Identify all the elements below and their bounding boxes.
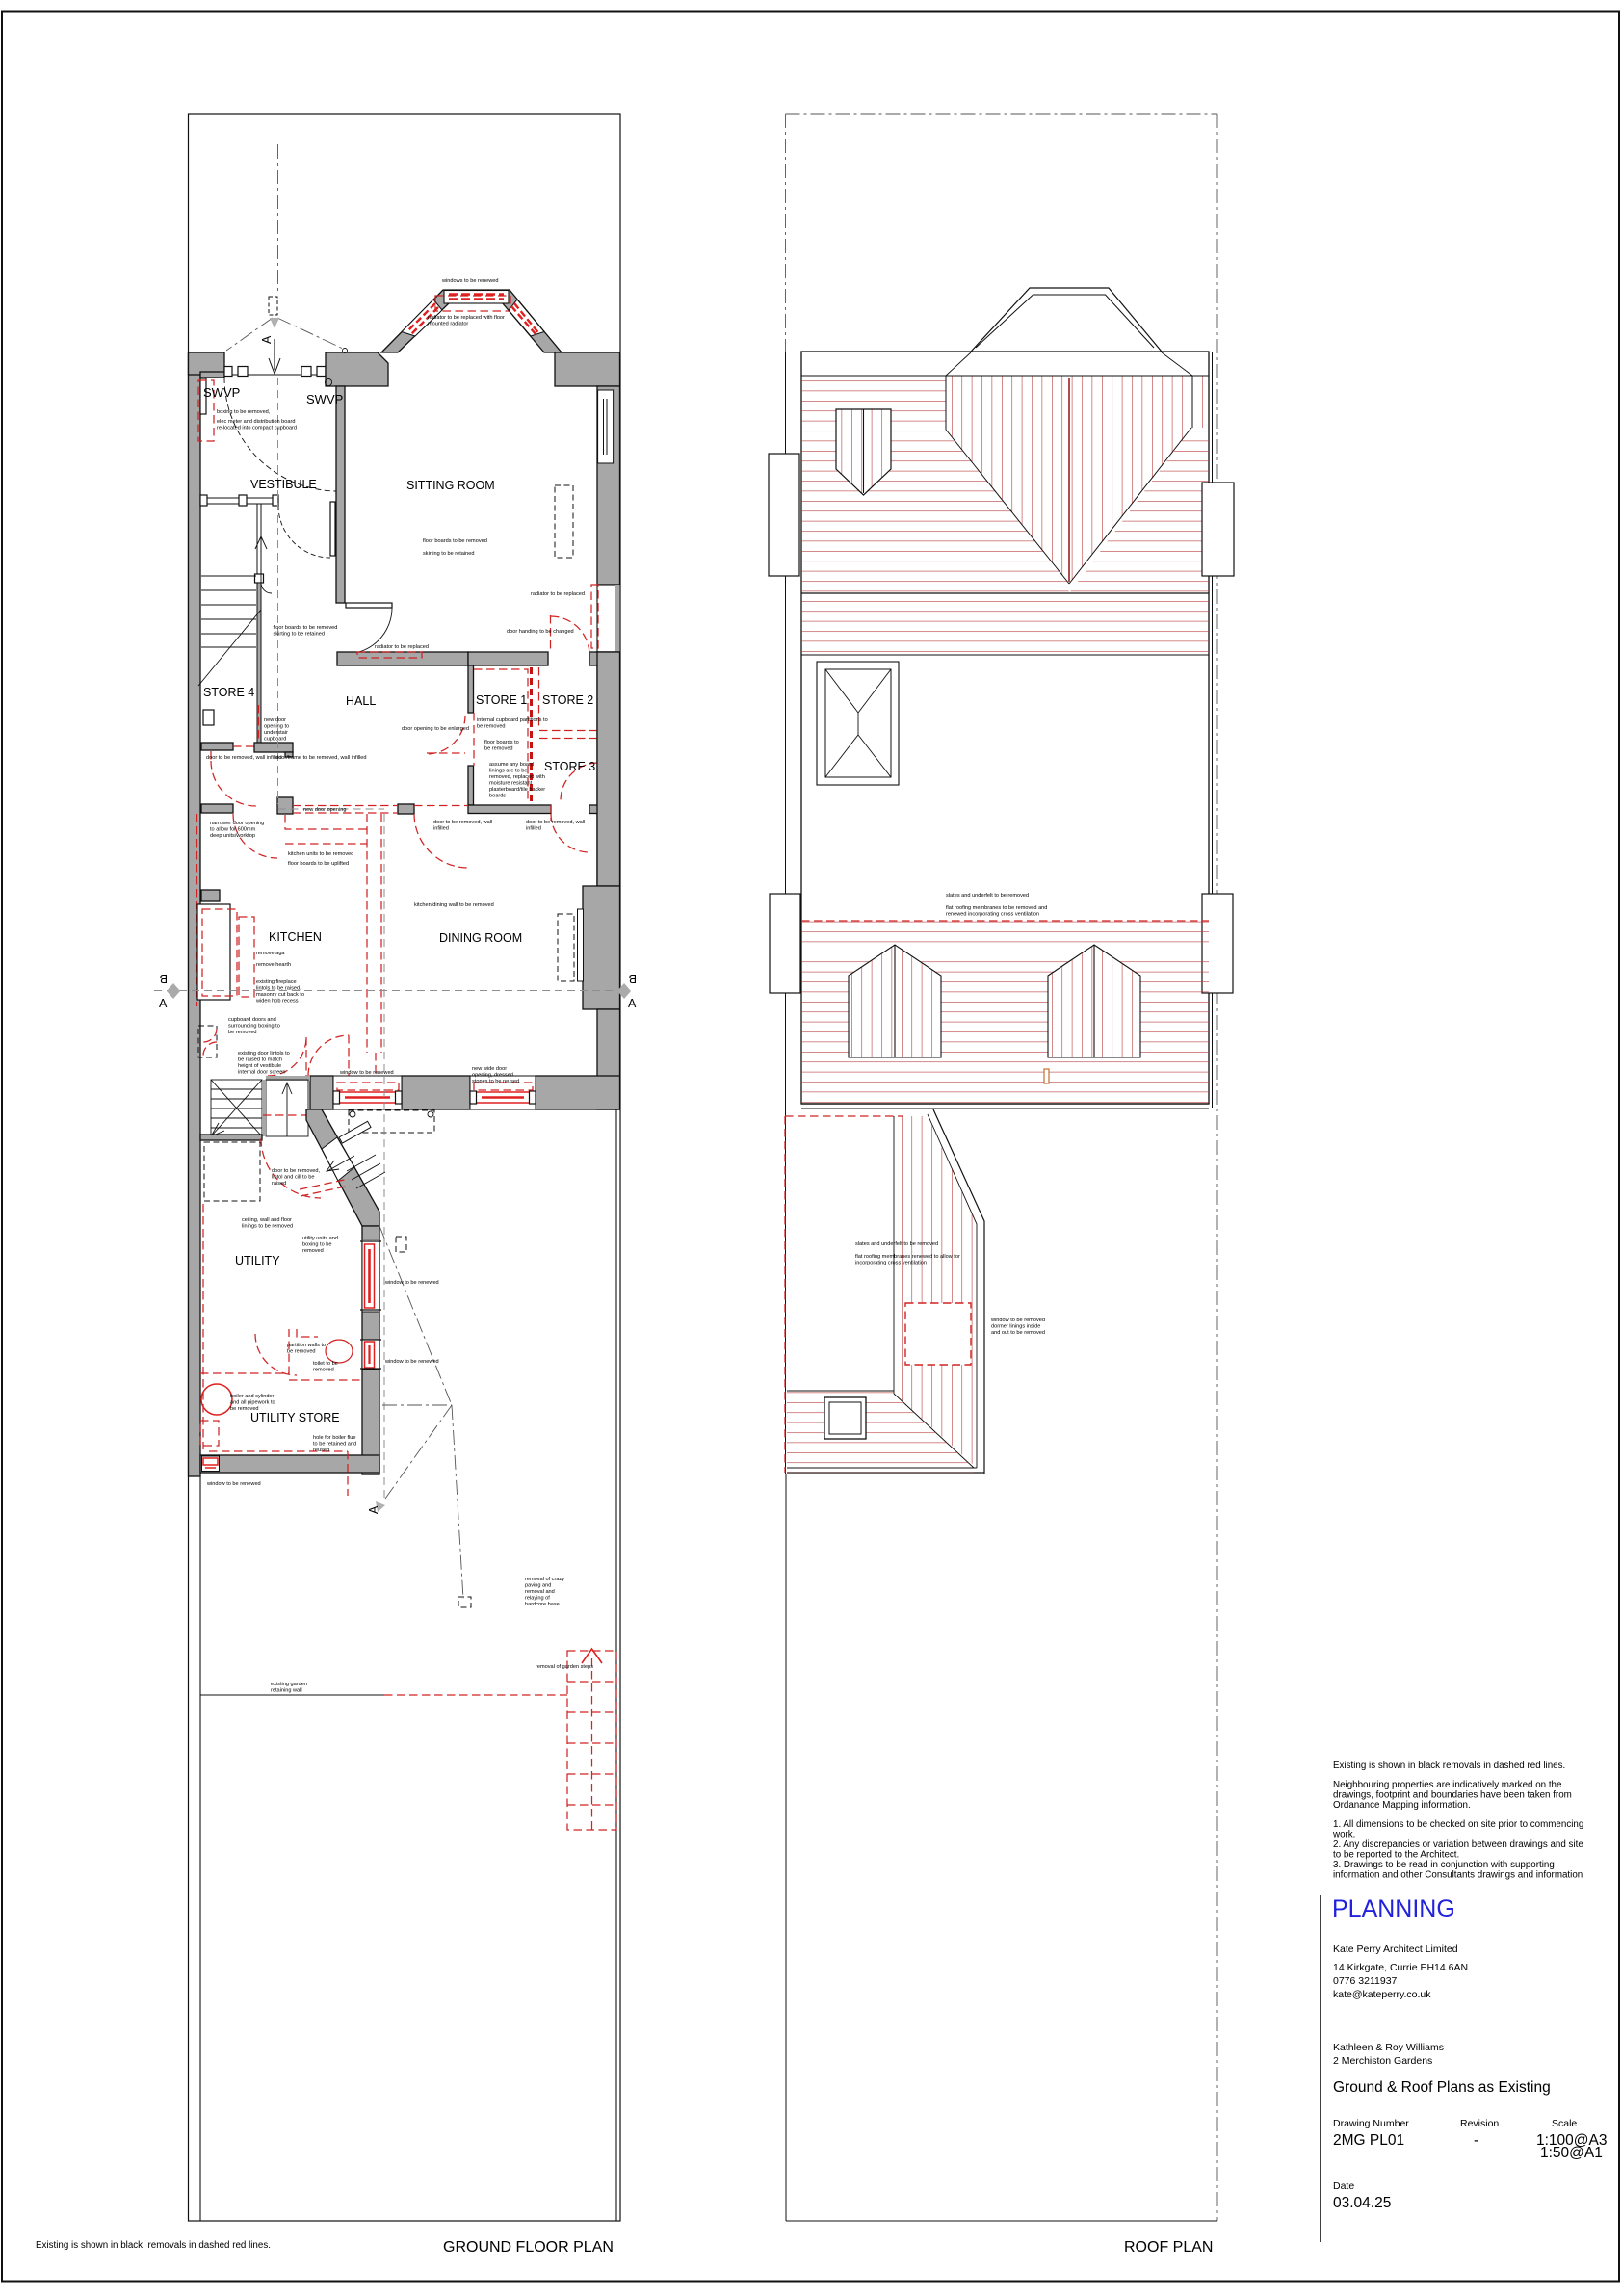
svg-text:removal and: removal and (525, 1589, 555, 1595)
svg-text:existing fireplace: existing fireplace (256, 979, 297, 985)
svg-text:GROUND FLOOR PLAN: GROUND FLOOR PLAN (443, 2239, 614, 2256)
svg-text:door handing to be changed: door handing to be changed (507, 629, 574, 635)
svg-text:stones to be reused: stones to be reused (472, 1079, 519, 1084)
svg-text:boards: boards (489, 794, 506, 799)
svg-text:elec meter and distribution bo: elec meter and distribution board (217, 419, 295, 425)
svg-text:relaying of: relaying of (525, 1596, 550, 1602)
svg-text:opening, dressed: opening, dressed (472, 1073, 513, 1079)
svg-text:boxing to be removed,: boxing to be removed, (217, 409, 271, 415)
svg-text:skirting to be retained: skirting to be retained (274, 632, 325, 638)
svg-text:opening to: opening to (264, 724, 289, 730)
svg-text:SWVP: SWVP (203, 385, 240, 400)
svg-text:ROOF PLAN: ROOF PLAN (1124, 2239, 1213, 2256)
svg-text:Scale: Scale (1552, 2118, 1577, 2129)
svg-text:flat roofing membranes to be r: flat roofing membranes to be removed and (946, 905, 1047, 911)
svg-text:toilet to be: toilet to be (313, 1361, 338, 1367)
svg-text:incorporating cross ventilatio: incorporating cross ventilation (855, 1261, 927, 1266)
svg-text:linings to be removed: linings to be removed (242, 1224, 293, 1230)
svg-text:Ground & Roof Plans as Existin: Ground & Roof Plans as Existing (1333, 2079, 1551, 2096)
svg-text:1:50@A1: 1:50@A1 (1540, 2145, 1603, 2161)
svg-text:Existing is shown in black rem: Existing is shown in black removals in d… (1333, 1761, 1565, 1771)
svg-text:and out to be removed: and out to be removed (991, 1330, 1045, 1336)
svg-text:UTILITY: UTILITY (235, 1254, 280, 1267)
svg-text:03.04.25: 03.04.25 (1333, 2195, 1391, 2211)
svg-text:new wide door: new wide door (472, 1066, 507, 1072)
svg-text:2. Any discrepancies or variat: 2. Any discrepancies or variation betwee… (1333, 1839, 1583, 1850)
svg-text:3. Drawings to be read in conj: 3. Drawings to be read in conjunction wi… (1333, 1860, 1555, 1870)
svg-text:door to be removed,: door to be removed, (272, 1168, 321, 1174)
svg-text:skirting to be retained: skirting to be retained (423, 551, 474, 557)
svg-text:infilled: infilled (433, 826, 449, 832)
svg-text:lintol and cill to be: lintol and cill to be (272, 1175, 314, 1181)
svg-text:PLANNING: PLANNING (1332, 1895, 1455, 1922)
svg-text:to allow for 600mm: to allow for 600mm (210, 827, 256, 833)
svg-text:and all pipework to: and all pipework to (230, 1400, 275, 1406)
svg-text:internal door screen: internal door screen (238, 1070, 285, 1076)
svg-text:be removed: be removed (287, 1349, 316, 1355)
svg-text:STORE 1: STORE 1 (476, 693, 527, 707)
svg-text:removed: removed (313, 1368, 334, 1373)
svg-text:lintols to be raised,: lintols to be raised, (256, 986, 301, 992)
svg-text:Ordanance Mapping information.: Ordanance Mapping information. (1333, 1800, 1471, 1811)
svg-text:SWVP: SWVP (306, 392, 343, 406)
svg-text:STORE 2: STORE 2 (542, 693, 593, 707)
svg-text:be raised to match: be raised to match (238, 1057, 282, 1063)
svg-text:Neighbouring properties are in: Neighbouring properties are indicatively… (1333, 1780, 1562, 1790)
svg-text:SITTING ROOM: SITTING ROOM (406, 479, 495, 492)
svg-text:DINING ROOM: DINING ROOM (439, 931, 522, 945)
svg-text:dormer linings inside: dormer linings inside (991, 1324, 1040, 1330)
svg-text:new door: new door (264, 717, 286, 723)
svg-text:STORE 3: STORE 3 (544, 760, 595, 773)
svg-text:A: A (260, 335, 274, 344)
svg-text:kitchen/dining wall to be remo: kitchen/dining wall to be removed (414, 902, 494, 908)
svg-text:be removed: be removed (484, 746, 513, 752)
svg-text:B: B (629, 972, 637, 985)
svg-text:window to be renewed: window to be renewed (384, 1359, 439, 1365)
svg-text:cupboard doors and: cupboard doors and (228, 1017, 276, 1023)
svg-text:boiler and cylinder: boiler and cylinder (230, 1394, 275, 1399)
svg-text:assume any board: assume any board (489, 762, 534, 768)
svg-text:be removed: be removed (228, 1030, 257, 1035)
svg-text:2 Merchiston Gardens: 2 Merchiston Gardens (1333, 2055, 1432, 2067)
svg-text:new door opening: new door opening (303, 807, 346, 813)
svg-text:narrower door opening: narrower door opening (210, 821, 264, 826)
svg-text:reused: reused (313, 1448, 329, 1453)
svg-text:VESTIBULE: VESTIBULE (250, 478, 317, 491)
svg-text:plasterboard/tile backer: plasterboard/tile backer (489, 787, 545, 793)
svg-text:information and other Consulta: information and other Consultants drawin… (1333, 1870, 1583, 1881)
svg-text:removed, replaced with: removed, replaced with (489, 774, 545, 780)
svg-text:mounted radiator: mounted radiator (428, 322, 468, 327)
svg-text:infilled: infilled (526, 826, 541, 832)
svg-text:UTILITY STORE: UTILITY STORE (250, 1411, 340, 1424)
svg-text:hardcore base: hardcore base (525, 1602, 560, 1607)
svg-text:Drawing Number: Drawing Number (1333, 2118, 1409, 2129)
svg-text:-: - (1474, 2132, 1478, 2149)
svg-text:internal cupboard partitions t: internal cupboard partitions to (477, 717, 548, 723)
svg-text:floor boards to be removed: floor boards to be removed (423, 538, 487, 544)
svg-text:retaining wall: retaining wall (271, 1688, 302, 1694)
svg-text:A: A (367, 1505, 380, 1514)
svg-text:existing garden: existing garden (271, 1682, 307, 1687)
svg-text:cupboard: cupboard (264, 737, 286, 743)
svg-text:ceiling, wall and floor: ceiling, wall and floor (242, 1217, 292, 1223)
svg-text:door to be removed, wall: door to be removed, wall (433, 820, 492, 825)
svg-text:to be retained and: to be retained and (313, 1442, 356, 1448)
svg-text:be removed: be removed (477, 724, 506, 730)
svg-text:re-located into compact cupboa: re-located into compact cupboard (217, 426, 297, 431)
svg-text:existing door lintols to: existing door lintols to (238, 1051, 290, 1057)
svg-text:renewed incorporating cross ve: renewed incorporating cross ventilation (946, 912, 1039, 918)
svg-text:HALL: HALL (346, 694, 376, 708)
svg-text:door opening to be enlarged: door opening to be enlarged (402, 726, 469, 732)
svg-text:window to be removed: window to be removed (990, 1318, 1045, 1323)
svg-text:height of vestibule: height of vestibule (238, 1063, 281, 1069)
svg-text:floor boards to be uplifted: floor boards to be uplifted (288, 861, 349, 867)
svg-text:0776 3211937: 0776 3211937 (1333, 1975, 1398, 1987)
svg-text:moisture resistant: moisture resistant (489, 781, 533, 787)
svg-text:slates and underfelt to be rem: slates and underfelt to be removed (855, 1241, 938, 1247)
svg-text:B: B (160, 972, 168, 985)
svg-text:raised: raised (272, 1181, 286, 1187)
svg-text:linings are to be: linings are to be (489, 769, 528, 774)
svg-text:Kate Perry Architect Limited: Kate Perry Architect Limited (1333, 1944, 1458, 1955)
svg-text:boxing to be: boxing to be (302, 1242, 331, 1248)
svg-text:remove aga: remove aga (256, 951, 285, 956)
svg-text:window to be renewed: window to be renewed (339, 1070, 394, 1076)
svg-text:work.: work. (1332, 1830, 1355, 1840)
svg-text:widen hob recess: widen hob recess (255, 999, 299, 1004)
svg-text:partition walls to: partition walls to (287, 1343, 326, 1348)
svg-text:door to be removed, wall: door to be removed, wall (526, 820, 585, 825)
svg-text:Existing is shown in black, re: Existing is shown in black, removals in … (36, 2240, 271, 2251)
svg-text:floor boards to be removed: floor boards to be removed (274, 625, 338, 631)
svg-text:removal of garden steps: removal of garden steps (536, 1664, 593, 1670)
svg-text:Revision: Revision (1460, 2118, 1499, 2129)
svg-text:radiator to be replaced: radiator to be replaced (375, 644, 429, 650)
svg-text:A: A (159, 997, 168, 1010)
svg-text:window to be renewed: window to be renewed (384, 1280, 439, 1286)
svg-text:STORE 4: STORE 4 (203, 686, 254, 699)
svg-text:masonry cut back to: masonry cut back to (256, 992, 304, 998)
svg-text:door to be removed, wall infil: door to be removed, wall infilled (206, 755, 282, 761)
svg-text:KITCHEN: KITCHEN (269, 930, 322, 944)
svg-text:kitchen units to be removed: kitchen units to be removed (288, 851, 353, 857)
svg-text:removed: removed (302, 1248, 324, 1254)
svg-text:drawings, footprint and bounda: drawings, footprint and boundaries have … (1333, 1790, 1572, 1801)
svg-text:deep units/worktop: deep units/worktop (210, 833, 255, 839)
svg-text:Kathleen & Roy Williams: Kathleen & Roy Williams (1333, 2042, 1444, 2053)
svg-text:paving and: paving and (525, 1583, 551, 1589)
svg-text:2MG PL01: 2MG PL01 (1333, 2132, 1404, 2149)
svg-text:radiator to be replaced: radiator to be replaced (531, 591, 585, 597)
svg-text:1. All dimensions to be checke: 1. All dimensions to be checked on site … (1333, 1819, 1583, 1830)
svg-text:door/frame to be removed, wall: door/frame to be removed, wall infilled (275, 755, 367, 761)
svg-text:radiator to be replaced with f: radiator to be replaced with floor (428, 315, 505, 321)
svg-text:flat roofing membranes renewed: flat roofing membranes renewed to allow … (855, 1254, 960, 1260)
svg-text:understair: understair (264, 730, 288, 736)
svg-text:kate@kateperry.co.uk: kate@kateperry.co.uk (1333, 1989, 1431, 2000)
svg-text:slates and underfelt to be rem: slates and underfelt to be removed (946, 893, 1029, 899)
svg-text:A: A (628, 997, 637, 1010)
svg-text:removal of crazy: removal of crazy (525, 1577, 564, 1582)
svg-text:floor boards to: floor boards to (484, 740, 519, 745)
svg-text:window to be renewed: window to be renewed (206, 1481, 261, 1487)
svg-text:hole for boiler flue: hole for boiler flue (313, 1435, 355, 1441)
svg-text:Date: Date (1333, 2180, 1354, 2192)
svg-text:to be reported to the Architec: to be reported to the Architect. (1333, 1850, 1459, 1861)
svg-text:utility units and: utility units and (302, 1236, 338, 1241)
svg-text:remove hearth: remove hearth (256, 962, 291, 968)
svg-text:14 Kirkgate, Currie EH14 6AN: 14 Kirkgate, Currie EH14 6AN (1333, 1962, 1468, 1973)
svg-text:windows to be renewed: windows to be renewed (441, 278, 498, 284)
svg-text:surrounding boxing to: surrounding boxing to (228, 1024, 280, 1030)
